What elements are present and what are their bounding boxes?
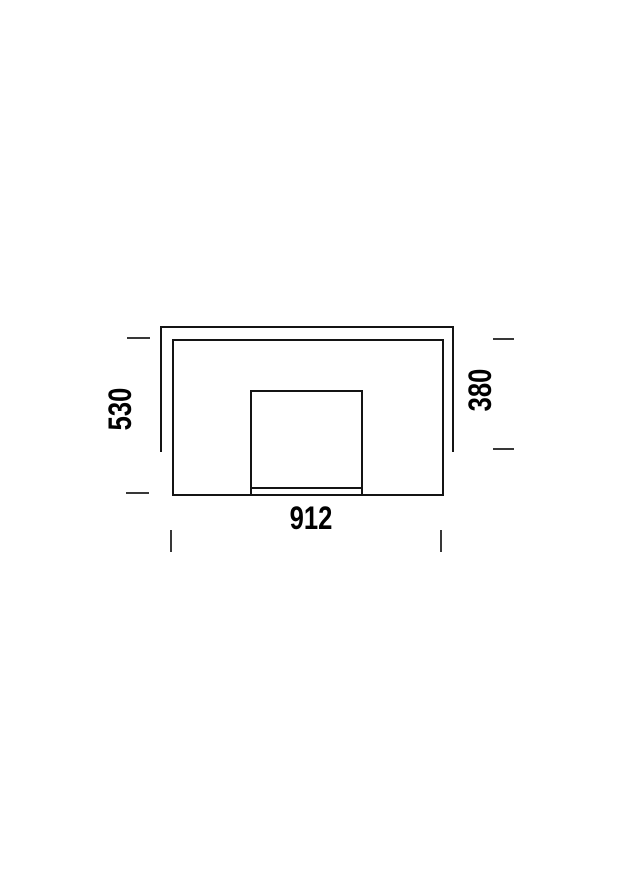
dim-tick-bottom-right [440, 530, 442, 552]
dimension-label-height-right: 380 [464, 369, 496, 412]
inset-box-base-line [251, 487, 362, 489]
page: 530 380 912 [0, 0, 620, 877]
dimension-label-height-left: 530 [104, 388, 136, 431]
dimension-label-width-bottom: 912 [290, 502, 333, 534]
dim-tick-left-top [127, 337, 150, 339]
dim-tick-right-bottom [493, 448, 514, 450]
dim-tick-bottom-left [170, 530, 172, 552]
dim-tick-right-top [493, 338, 514, 340]
technical-dimension-drawing: 530 380 912 [0, 0, 620, 877]
inset-box-outline [250, 390, 363, 496]
dim-tick-left-bottom [126, 492, 149, 494]
